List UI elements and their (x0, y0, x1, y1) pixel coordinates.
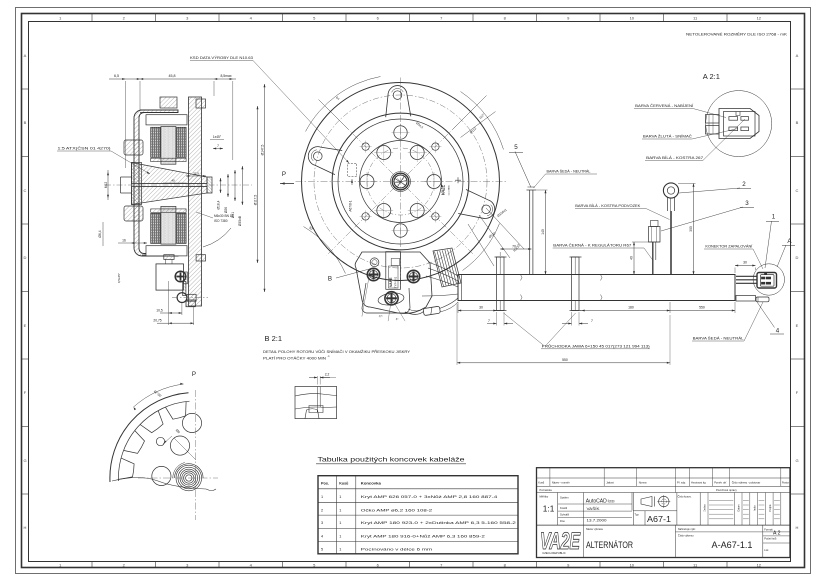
svg-text:1: 1 (339, 535, 341, 539)
svg-text:Kryt AMP 180 923-0 + 2xDutinka: Kryt AMP 180 923-0 + 2xDutinka AMP 6,3 5… (361, 520, 517, 525)
svg-text:BARVA ČERNÁ - K REGULÁTORU R67: BARVA ČERNÁ - K REGULÁTORU R67 (553, 242, 631, 247)
svg-text:1: 1 (339, 548, 341, 552)
svg-text:Ø35±B: Ø35±B (238, 215, 242, 226)
svg-text:2: 2 (742, 181, 746, 188)
svg-text:3: 3 (321, 521, 323, 525)
svg-text:30: 30 (743, 261, 747, 265)
svg-text:40: 40 (629, 256, 633, 260)
svg-text:Nahrazuje výkr.: Nahrazuje výkr. (678, 527, 696, 531)
svg-text:List: List (764, 548, 768, 552)
svg-text:NETOLEROVANÉ ROZMĚRY DLE ISO 2: NETOLEROVANÉ ROZMĚRY DLE ISO 2768 - mK (686, 32, 788, 37)
svg-text:Kusů: Kusů (538, 480, 544, 484)
svg-text:Poměr. drť: Poměr. drť (714, 480, 726, 484)
svg-text:KONEKTOR ZAPALOVÁNÍ: KONEKTOR ZAPALOVÁNÍ (705, 245, 752, 249)
svg-text:Povrchové úpravy: Povrchové úpravy (716, 488, 737, 492)
svg-text:Koncovka: Koncovka (361, 481, 382, 485)
svg-text:Název - rozměr: Název - rozměr (552, 480, 570, 484)
svg-text:Př. sdp.: Př. sdp. (677, 480, 686, 484)
svg-text:Ø18,4: Ø18,4 (216, 200, 220, 209)
svg-text:D: D (24, 255, 27, 260)
svg-text:B: B (796, 120, 799, 125)
svg-text:BARVA ŠEDÁ - NEUTRÁL: BARVA ŠEDÁ - NEUTRÁL (693, 336, 744, 341)
svg-text:Index: Index (754, 504, 756, 510)
svg-text:Systém: Systém (560, 496, 569, 500)
svg-text:32,9: 32,9 (193, 172, 199, 176)
svg-text:Podpis: Podpis (770, 504, 772, 512)
svg-text:2: 2 (321, 508, 323, 512)
svg-text:4: 4 (321, 535, 323, 539)
svg-text:Kryt AMP 180 916-0+Nůž AMP 6,3: Kryt AMP 180 916-0+Nůž AMP 6,3 160 859-2 (361, 534, 486, 539)
svg-text:VAŠÍK: VAŠÍK (587, 506, 601, 511)
svg-text:Typ: Typ (635, 513, 640, 517)
svg-text:M6x30 BN 19: M6x30 BN 19 (214, 214, 234, 218)
svg-text:16: 16 (122, 239, 126, 243)
svg-text:Název výkresu: Název výkresu (586, 527, 604, 531)
svg-text:BARVA ČERVENÁ - NABÍJENÍ: BARVA ČERVENÁ - NABÍJENÍ (635, 103, 693, 108)
svg-text:BARVA ŽLUTÁ - SNÍMAČ: BARVA ŽLUTÁ - SNÍMAČ (643, 134, 693, 139)
svg-text:CZECH REPUBLIC: CZECH REPUBLIC (542, 551, 566, 555)
svg-text:KSD DATA VÝROBY DLE N10.63: KSD DATA VÝROBY DLE N10.63 (190, 56, 253, 60)
svg-text:C: C (24, 188, 27, 193)
svg-text:P: P (282, 171, 286, 178)
svg-text:H: H (796, 525, 799, 530)
svg-text:1: 1 (772, 214, 776, 221)
svg-text:2,2: 2,2 (325, 373, 330, 377)
svg-text:A67-1: A67-1 (647, 515, 671, 524)
svg-text:Formát: Formát (764, 528, 772, 532)
svg-text:1: 1 (339, 508, 341, 512)
svg-text:7: 7 (217, 144, 219, 148)
svg-text:30: 30 (479, 306, 483, 310)
svg-text:B: B (24, 120, 27, 125)
svg-text:550: 550 (562, 358, 568, 362)
svg-text:D: D (796, 255, 799, 260)
svg-text:10,5: 10,5 (156, 308, 163, 312)
svg-text:VAPE: VAPE (389, 277, 393, 287)
svg-text:B 2:1: B 2:1 (265, 334, 283, 343)
svg-text:A: A (24, 53, 27, 58)
svg-text:0,5x45°: 0,5x45° (117, 272, 121, 283)
svg-text:A 2:1: A 2:1 (703, 72, 720, 81)
svg-text:3: 3 (745, 200, 749, 207)
svg-text:7: 7 (488, 319, 490, 323)
svg-text:Kryt AMP 626 057-0 + 3xNůž AMP: Kryt AMP 626 057-0 + 3xNůž AMP 2,8 160 8… (361, 494, 499, 499)
svg-text:1x45°: 1x45° (213, 135, 222, 139)
svg-text:M12: M12 (104, 182, 108, 189)
svg-text:5: 5 (514, 144, 518, 151)
svg-text:Jakost: Jakost (606, 480, 614, 484)
svg-text:45,8: 45,8 (169, 74, 176, 78)
svg-text:Posice: Posice (782, 482, 790, 484)
svg-text:H: H (24, 525, 27, 530)
svg-text:40: 40 (171, 179, 175, 183)
svg-text:8,5max: 8,5max (220, 74, 231, 78)
svg-text:Schválil: Schválil (560, 513, 569, 517)
svg-text:140: 140 (541, 229, 545, 235)
svg-text:70: 70 (512, 245, 516, 249)
svg-text:B: B (328, 276, 332, 283)
svg-text:Kreslil: Kreslil (560, 506, 567, 510)
svg-text:AutoCAD: AutoCAD (586, 498, 607, 504)
svg-text:P: P (192, 371, 196, 378)
svg-text:C: C (796, 188, 799, 193)
svg-text:Norma: Norma (639, 480, 647, 484)
svg-text:Hmotnost kg: Hmotnost kg (691, 480, 706, 484)
svg-text:®2000: ®2000 (608, 499, 615, 503)
svg-text:Ø147,5: Ø147,5 (260, 144, 264, 155)
svg-text:6,5: 6,5 (114, 74, 119, 78)
svg-text:1:5 ATX(ČSN 01 4270): 1:5 ATX(ČSN 01 4270) (58, 146, 111, 151)
svg-text:Ø6,4: Ø6,4 (98, 230, 102, 237)
svg-text:12: 12 (757, 562, 762, 567)
svg-text:180: 180 (628, 306, 634, 310)
svg-text:12: 12 (757, 16, 762, 21)
svg-text:Měřítko: Měřítko (540, 495, 549, 499)
svg-text:13.7.2000: 13.7.2000 (587, 518, 607, 522)
svg-text:Datum: Datum (738, 505, 741, 512)
svg-text:TYP-S01: TYP-S01 (394, 276, 398, 288)
svg-text:A: A (796, 53, 799, 58)
svg-text:G: G (795, 458, 798, 463)
svg-text:CZ-17AB21: CZ-17AB21 (448, 184, 451, 195)
svg-text:5: 5 (321, 548, 323, 552)
svg-text:Ø26: Ø26 (224, 207, 228, 213)
svg-text:A67/8-1: A67/8-1 (349, 200, 353, 211)
svg-text:VA2E: VA2E (441, 184, 446, 195)
svg-text:1: 1 (339, 521, 341, 525)
svg-text:ISO 7380: ISO 7380 (214, 219, 228, 223)
svg-text:10: 10 (630, 16, 635, 21)
svg-text:DETAIL POLOHY ROTORU VŮČI SNÍM: DETAIL POLOHY ROTORU VŮČI SNÍMAČI V OKAM… (263, 349, 411, 354)
svg-text:1:1: 1:1 (543, 504, 555, 514)
svg-text:Pocínováno v délce 6 mm: Pocínováno v délce 6 mm (361, 547, 433, 552)
svg-text:G: G (23, 458, 26, 463)
svg-text:300: 300 (689, 226, 693, 232)
svg-text:Počet listů: Počet listů (764, 537, 777, 541)
svg-text:BARVA ŠEDÁ - NEUTRÁL: BARVA ŠEDÁ - NEUTRÁL (547, 169, 591, 174)
svg-text:10: 10 (630, 562, 635, 567)
svg-text:1: 1 (339, 495, 341, 499)
svg-text:17°: 17° (378, 314, 383, 319)
svg-text:Kusů: Kusů (339, 481, 349, 485)
svg-text:PLATÍ PRO OTÁČKY 4000 MIN: PLATÍ PRO OTÁČKY 4000 MIN (263, 355, 327, 360)
svg-text:ALTERNÁTOR: ALTERNÁTOR (586, 540, 633, 550)
svg-text:Pos.: Pos. (321, 481, 329, 485)
svg-text:E: E (796, 323, 799, 328)
svg-text:E: E (24, 323, 27, 328)
svg-text:7: 7 (591, 319, 593, 323)
svg-text:Očko AMP ø6,2 160 108-2: Očko AMP ø6,2 160 108-2 (361, 507, 433, 512)
svg-text:Dne: Dne (560, 519, 565, 523)
svg-text:20,75: 20,75 (153, 319, 161, 323)
svg-text:BARVA BÍLÁ - KOSTRA 267: BARVA BÍLÁ - KOSTRA 267 (646, 156, 703, 160)
svg-text:Změna: Změna (705, 504, 707, 512)
svg-text:A 2: A 2 (773, 530, 781, 536)
svg-text:PRŮCHODKA JAWA 6×150 45 017(27: PRŮCHODKA JAWA 6×150 45 017(273 121 994 … (542, 344, 650, 349)
svg-text:A-A67-1.1: A-A67-1.1 (712, 540, 753, 550)
svg-text:1: 1 (321, 495, 323, 499)
svg-text:Ø117,5: Ø117,5 (253, 195, 257, 206)
svg-text:Poznámka: Poznámka (540, 488, 553, 492)
svg-text:550: 550 (699, 306, 705, 310)
svg-text:4: 4 (776, 328, 780, 335)
svg-text:BARVA BÍLÁ - KOSTRA PODVOZEK: BARVA BÍLÁ - KOSTRA PODVOZEK (575, 204, 641, 208)
svg-text:Tabulka použitých koncovek kab: Tabulka použitých koncovek kabeláže (318, 458, 466, 464)
